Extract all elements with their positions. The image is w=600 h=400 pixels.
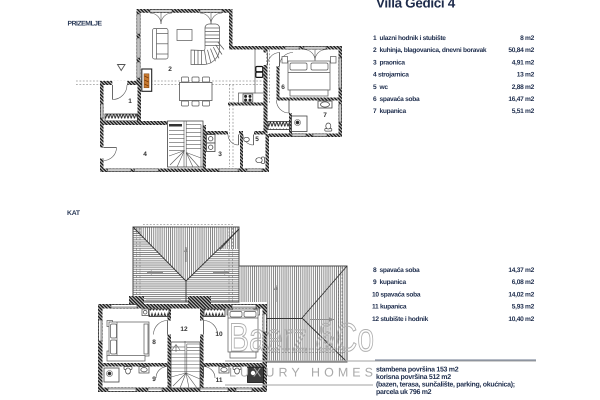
svg-text:5 wc: 5 wc [373, 84, 388, 91]
svg-text:5,51 m2: 5,51 m2 [512, 108, 535, 115]
svg-text:4 strojarnica: 4 strojarnica [373, 72, 409, 79]
svg-text:11: 11 [216, 377, 223, 384]
svg-text:4: 4 [143, 151, 147, 158]
svg-text:Baerz &Co: Baerz &Co [229, 316, 374, 360]
svg-text:9: 9 [152, 376, 156, 383]
svg-text:5: 5 [255, 136, 259, 143]
svg-text:1 ulazni hodnik i stubište: 1 ulazni hodnik i stubište [373, 35, 446, 42]
svg-text:6: 6 [281, 84, 285, 91]
svg-text:KAT: KAT [67, 210, 81, 217]
svg-text:16,47 m2: 16,47 m2 [508, 96, 534, 103]
svg-text:2,88 m2: 2,88 m2 [512, 84, 535, 91]
svg-text:11 kupanica: 11 kupanica [372, 304, 407, 311]
svg-text:4,91 m2: 4,91 m2 [512, 59, 535, 66]
svg-text:2 kuhinja, blagovanica, dnevn: 2 kuhinja, blagovanica, dnevni boravak [373, 47, 487, 54]
svg-text:14,02 m2: 14,02 m2 [508, 291, 534, 298]
svg-text:9 kupanica: 9 kupanica [373, 279, 406, 286]
svg-text:6,08 m2: 6,08 m2 [512, 279, 535, 286]
svg-text:7 kupanica: 7 kupanica [373, 108, 406, 115]
svg-text:12 stubište i hodnik: 12 stubište i hodnik [372, 316, 429, 323]
svg-text:stambena površina 153 m2: stambena površina 153 m2 [376, 366, 459, 374]
svg-text:parcela uk 796 m2: parcela uk 796 m2 [376, 388, 432, 396]
svg-text:14,37 m2: 14,37 m2 [508, 267, 534, 274]
svg-text:3: 3 [218, 151, 222, 158]
svg-text:Villa Gedići 4: Villa Gedići 4 [376, 0, 456, 11]
svg-text:(bazen, terasa, sunčalište, pa: (bazen, terasa, sunčalište, parking, oku… [376, 381, 515, 389]
svg-text:13 m2: 13 m2 [517, 72, 535, 79]
svg-text:korisna površina 512 m2: korisna površina 512 m2 [376, 373, 451, 381]
svg-text:12: 12 [180, 326, 188, 333]
svg-text:10 spavaća soba: 10 spavaća soba [372, 291, 421, 298]
svg-text:8 m2: 8 m2 [520, 35, 535, 42]
svg-text:10: 10 [215, 331, 223, 338]
svg-text:10,40 m2: 10,40 m2 [508, 316, 534, 323]
svg-text:2: 2 [168, 66, 172, 73]
svg-text:6 spavaća soba: 6 spavaća soba [373, 96, 420, 103]
svg-text:1: 1 [128, 98, 132, 105]
svg-text:3 praonica: 3 praonica [373, 59, 405, 66]
svg-text:50,84 m2: 50,84 m2 [508, 47, 534, 54]
svg-text:8: 8 [152, 339, 156, 346]
svg-text:7: 7 [323, 112, 327, 119]
svg-text:PRIZEMLJE: PRIZEMLJE [68, 21, 103, 28]
svg-text:5,93 m2: 5,93 m2 [512, 304, 535, 311]
svg-text:8 spavaća soba: 8 spavaća soba [373, 267, 420, 274]
